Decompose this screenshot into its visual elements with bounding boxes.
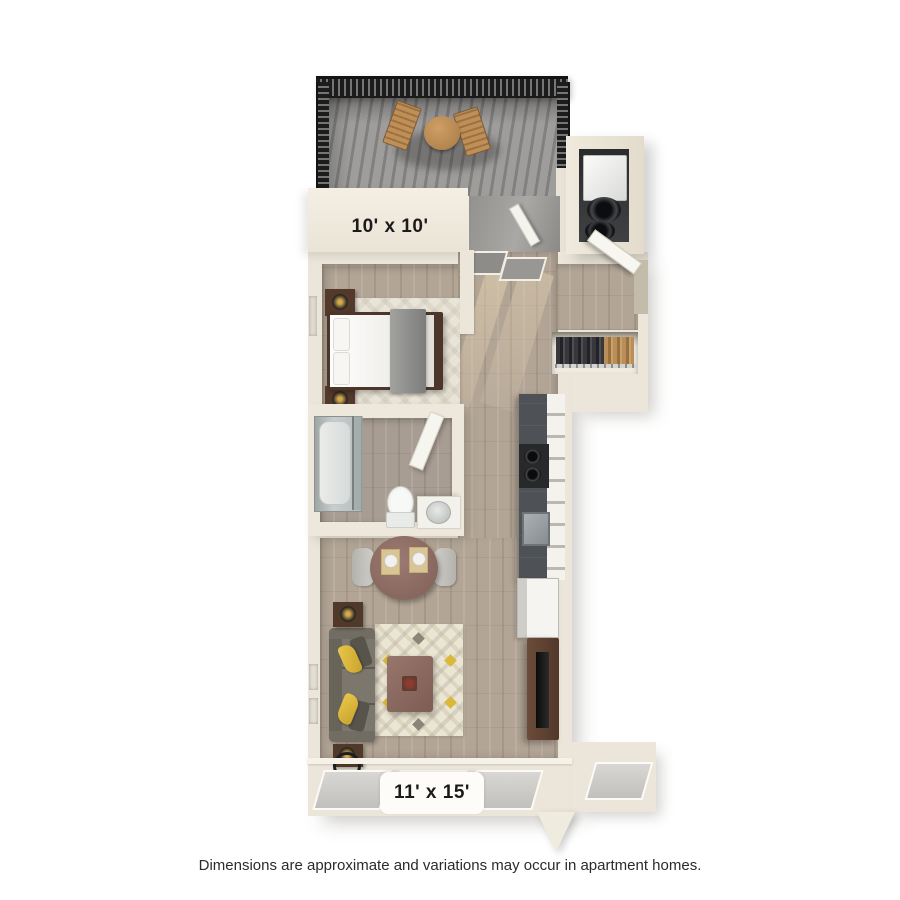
burner-icon — [524, 449, 541, 464]
entry-floor — [556, 264, 638, 330]
patio-dimension-label: 10' x 10' — [330, 216, 450, 238]
burner-icon — [524, 467, 541, 482]
patio-bistro-table — [424, 116, 460, 150]
television — [536, 652, 549, 728]
kitchen-cabinets — [547, 394, 565, 580]
bedroom-wall-window — [309, 296, 317, 336]
bed-pillow — [333, 352, 350, 385]
bedroom-partition-wall — [460, 250, 474, 334]
bed-throw-blanket — [390, 309, 426, 393]
lamp-icon — [332, 294, 348, 310]
window-pane — [585, 762, 654, 800]
table-centerpiece — [402, 676, 417, 691]
refrigerator — [517, 578, 559, 638]
entry-glass-panel — [499, 257, 548, 281]
bed-pillow — [333, 318, 350, 351]
plate-icon — [412, 552, 426, 566]
floorplan: 10' x 10' — [0, 0, 900, 900]
washer-dryer-top — [583, 155, 627, 201]
lamp-icon — [340, 606, 356, 622]
toilet-tank — [386, 512, 415, 528]
sofa-arm — [329, 628, 375, 639]
shower-glass-panel — [352, 416, 363, 510]
bathtub-basin — [319, 421, 351, 505]
patio-railing-top — [316, 76, 568, 98]
hanging-clothes-dark — [556, 337, 604, 364]
sofa-arm — [329, 731, 375, 742]
wall-accent — [309, 664, 318, 690]
patio-divider-wedge — [537, 812, 575, 852]
sofa-back — [329, 628, 342, 742]
floorplan-image: 10' x 10' — [0, 0, 900, 900]
hanging-clothes-tan — [604, 337, 634, 364]
plate-icon — [384, 554, 398, 568]
patio-railing-left — [316, 82, 329, 200]
kitchen-sink — [522, 512, 550, 546]
closet-rod — [555, 364, 637, 368]
disclaimer-text: Dimensions are approximate and variation… — [0, 857, 900, 874]
wall-accent — [309, 698, 318, 724]
window-sill — [308, 758, 572, 764]
vanity-sink — [426, 501, 451, 524]
washer-drum — [587, 197, 621, 223]
living-dimension-label: 11' x 15' — [380, 782, 484, 804]
